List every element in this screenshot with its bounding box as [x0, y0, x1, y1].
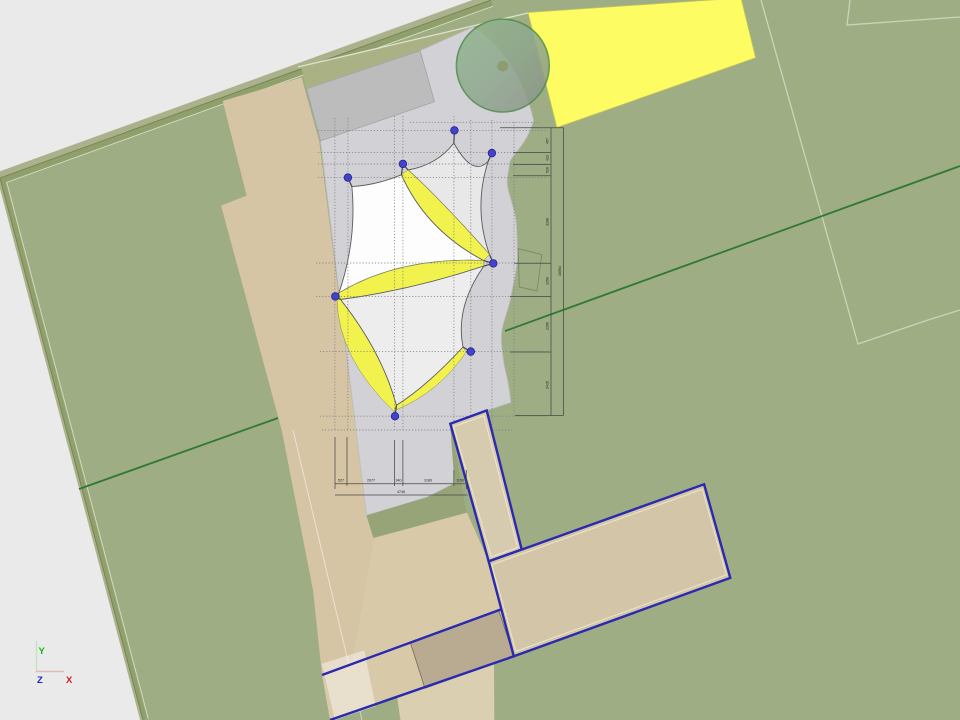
svg-text:4746: 4746 [397, 490, 405, 494]
svg-text:526: 526 [546, 167, 550, 173]
svg-text:X: X [66, 675, 73, 686]
svg-text:3180: 3180 [424, 479, 432, 483]
svg-text:1150: 1150 [456, 479, 464, 483]
svg-text:527: 527 [338, 479, 344, 483]
svg-text:423: 423 [546, 155, 550, 161]
svg-text:Y: Y [39, 646, 46, 657]
svg-text:340: 340 [396, 479, 402, 483]
svg-text:10564: 10564 [558, 266, 562, 276]
svg-text:3198: 3198 [546, 218, 550, 226]
svg-text:2977: 2977 [367, 479, 375, 483]
svg-text:Z: Z [37, 675, 43, 686]
svg-text:457: 457 [546, 138, 550, 144]
svg-text:1250: 1250 [546, 277, 550, 285]
svg-text:2150: 2150 [546, 322, 550, 330]
svg-text:2415: 2415 [546, 381, 550, 389]
